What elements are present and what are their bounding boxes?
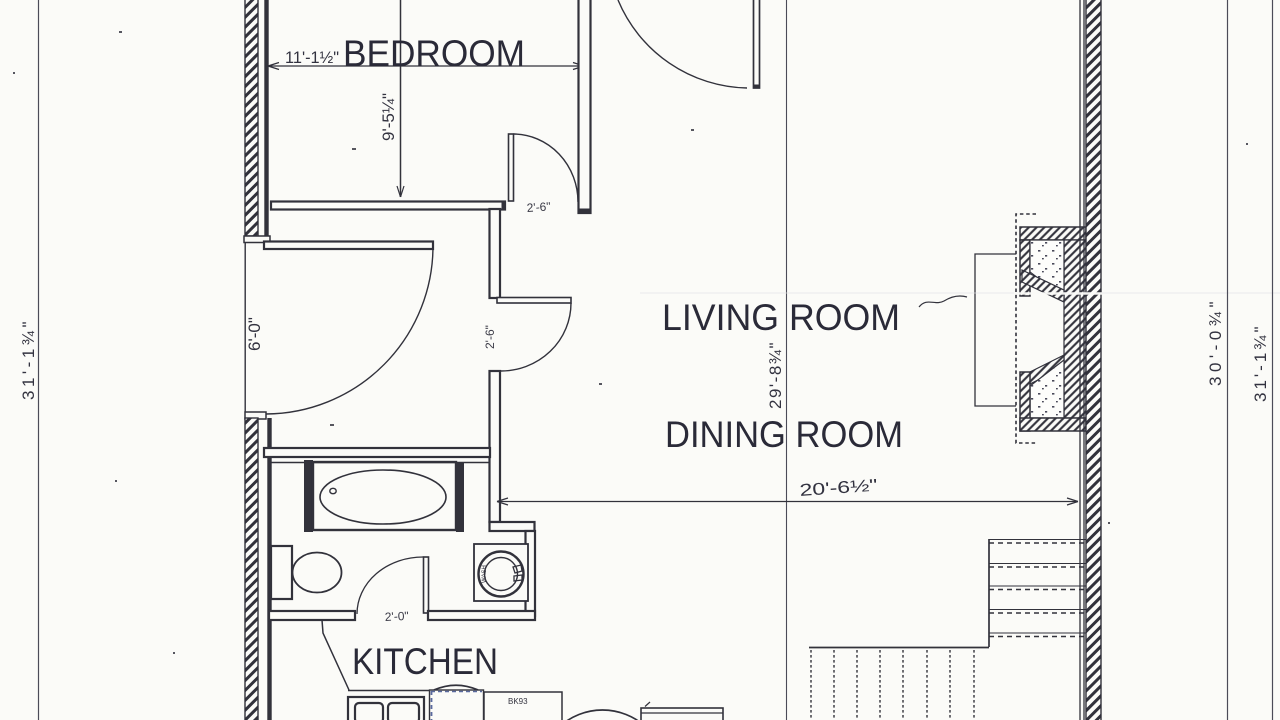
svg-text:BEDROOM: BEDROOM [343, 33, 525, 74]
svg-text:30'-0¾": 30'-0¾" [1206, 297, 1225, 386]
svg-text:2'-6": 2'-6" [526, 199, 551, 215]
svg-text:31'-1¾": 31'-1¾" [19, 318, 38, 400]
svg-text:31'-1¾": 31'-1¾" [1251, 324, 1270, 402]
svg-text:11'-1½": 11'-1½" [285, 48, 339, 67]
svg-text:LIVING ROOM: LIVING ROOM [662, 297, 900, 338]
svg-text:DINING ROOM: DINING ROOM [665, 414, 903, 455]
svg-text:2'-6": 2'-6" [483, 325, 497, 349]
svg-text:BK93: BK93 [508, 697, 528, 706]
svg-text:WASH: WASH [482, 565, 488, 583]
svg-text:2'-0": 2'-0" [384, 609, 409, 624]
svg-text:6'-0": 6'-0" [245, 317, 264, 351]
svg-text:9'-5¼": 9'-5¼" [379, 93, 398, 141]
svg-text:KITCHEN: KITCHEN [352, 641, 498, 682]
svg-text:29'-8¾": 29'-8¾" [766, 341, 785, 409]
